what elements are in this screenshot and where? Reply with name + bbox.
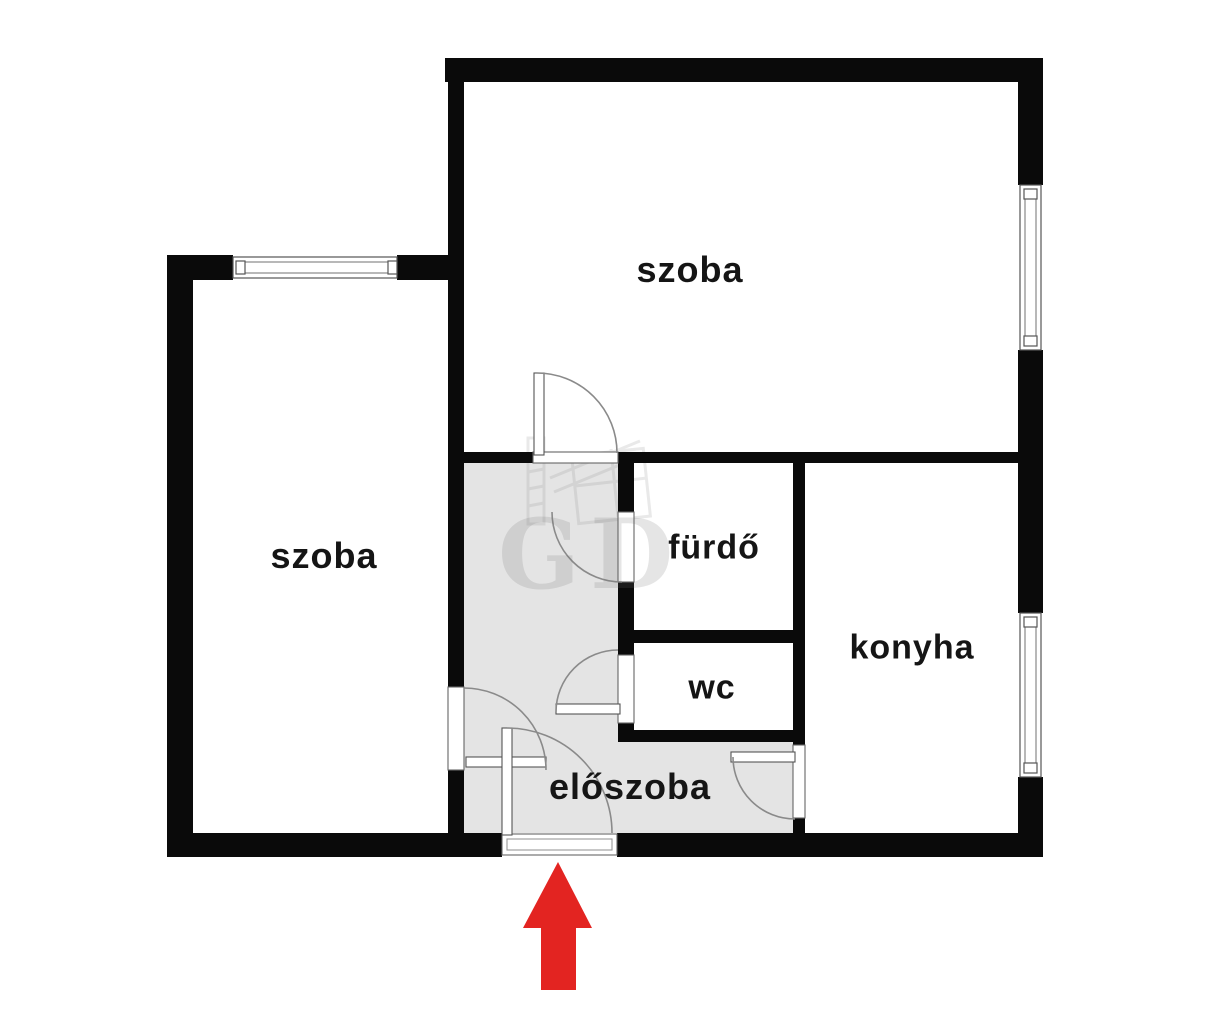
room-label-konyha: konyha [849, 629, 974, 668]
door-arc-room-top [537, 373, 617, 453]
door-leaf-wc [556, 704, 620, 714]
door-frame-room-left [448, 687, 464, 770]
wall-segment [1018, 58, 1043, 185]
wall-segment [167, 833, 502, 857]
door-leaf-kitchen [731, 752, 795, 762]
wall-segment [167, 255, 193, 857]
wall-segment [617, 833, 1043, 857]
wall-segment [793, 452, 805, 745]
window-room-left [233, 257, 397, 278]
wall-segment [448, 58, 464, 687]
entrance-threshold-inner [507, 839, 612, 850]
window-room-top [1020, 185, 1041, 350]
wall-segment [618, 630, 805, 643]
door-frame-room-top [533, 452, 618, 463]
wall-segment [445, 58, 1043, 82]
wall-segment [448, 770, 464, 833]
wall-segment [167, 255, 233, 280]
watermark-text: GD [498, 498, 683, 611]
wall-segment [618, 730, 805, 742]
room-label-szoba-top: szoba [636, 249, 743, 291]
wall-segment [618, 452, 1018, 463]
wall-segment [464, 452, 533, 463]
room-label-wc: wc [688, 669, 735, 708]
window-kitchen [1020, 613, 1041, 777]
room-label-szoba-left: szoba [270, 535, 377, 577]
door-leaf-entrance [502, 728, 512, 835]
wall-segment [618, 643, 634, 655]
room-label-eloszoba: előszoba [549, 766, 711, 808]
door-leaf-room-top [534, 373, 544, 455]
room-label-furdo: fürdő [668, 529, 760, 568]
floor-plan: GD szoba szoba fürdő wc konyha előszoba [0, 0, 1208, 1024]
wall-segment [1018, 350, 1043, 613]
wall-segment [793, 818, 805, 833]
up-arrow-icon [523, 862, 592, 990]
